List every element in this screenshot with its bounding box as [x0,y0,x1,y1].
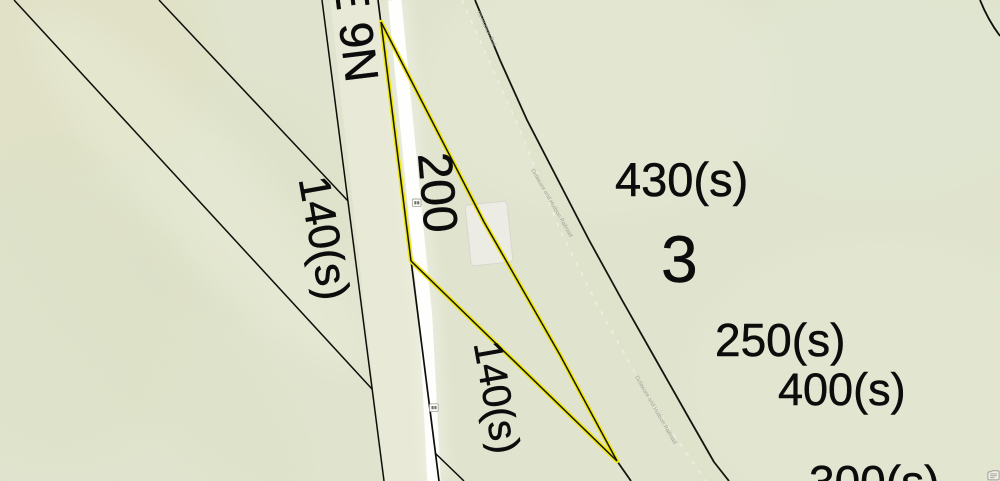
svg-text:400(s): 400(s) [778,364,906,415]
svg-text:3: 3 [661,222,698,296]
svg-text:430(s): 430(s) [615,153,748,206]
svg-text:300(s): 300(s) [809,456,939,481]
svg-text:200: 200 [407,150,467,234]
svg-text:250(s): 250(s) [715,314,845,366]
